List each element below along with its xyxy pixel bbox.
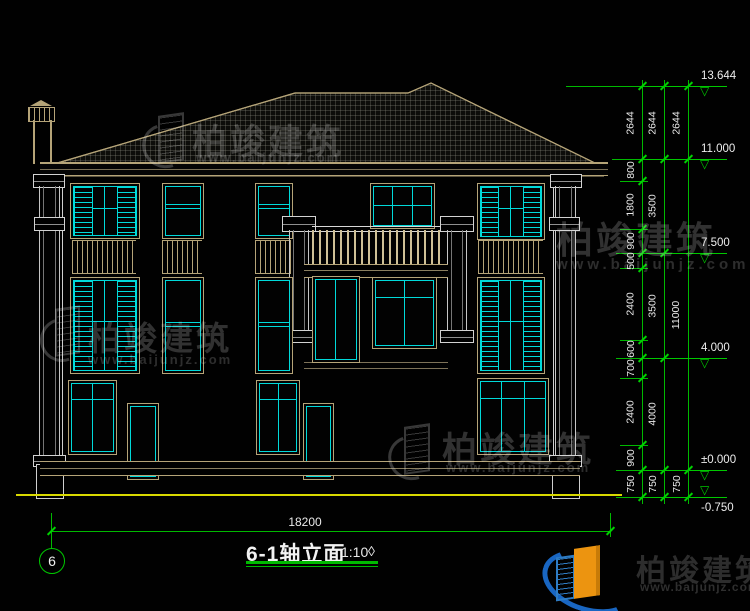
dim-segment-label-box: 2644 xyxy=(643,86,662,159)
brand-logo-icon xyxy=(40,302,84,360)
dim-segment-label: 2400 xyxy=(625,292,637,315)
watermark-url: www.baijunjz.com xyxy=(196,150,340,165)
logo-tower-icon xyxy=(574,545,600,599)
dim-segment-label: 750 xyxy=(625,475,637,493)
level-marker-label: ±0.000 xyxy=(701,454,736,466)
dim-segment-label: 800 xyxy=(625,161,637,179)
dim-segment-label-box: 2400 xyxy=(621,268,640,340)
dim-chain-line xyxy=(664,80,665,504)
logo-tower-small-icon xyxy=(556,555,575,602)
level-marker-triangle-icon: ▽ xyxy=(700,484,709,496)
dim-segment-label-box: 750 xyxy=(643,470,662,497)
level-marker-line xyxy=(646,497,727,498)
level-marker-label: -0.750 xyxy=(701,502,734,514)
watermark-url: www.baijunjz.com xyxy=(446,460,590,475)
level-marker-line xyxy=(646,86,727,87)
dim-segment-label-box: 700 xyxy=(621,358,640,378)
level-marker-line xyxy=(646,159,727,160)
dim-segment-label-box: 2644 xyxy=(667,86,686,159)
title-underline-thin xyxy=(246,566,378,567)
dim-segment-label: 750 xyxy=(647,475,659,493)
dim-segment-label-box: 2644 xyxy=(621,86,640,159)
level-marker-triangle-icon: ▽ xyxy=(700,469,709,481)
watermark-url: www.baijunjz.com xyxy=(88,352,232,367)
bottom-dimension-label: 18200 xyxy=(265,515,345,529)
dim-segment-label: 3500 xyxy=(647,294,659,317)
dim-segment-label-box: 750 xyxy=(667,470,686,497)
axis-bubble-label: 6 xyxy=(48,553,56,569)
watermark-url: www.baijunjz.com xyxy=(556,256,749,273)
dim-segment-label: 4000 xyxy=(647,402,659,425)
elevation-drawing-canvas: 2644800180090050024006007002400900750264… xyxy=(0,0,750,611)
level-marker-line xyxy=(646,470,727,471)
dim-segment-label-box: 2400 xyxy=(621,378,640,445)
dim-segment-label-box: 11000 xyxy=(667,159,686,470)
dim-segment-label: 11000 xyxy=(671,300,683,328)
dim-segment-label: 750 xyxy=(671,475,683,493)
dim-segment-label-box: 4000 xyxy=(643,358,662,470)
level-marker-triangle-icon: ▽ xyxy=(700,357,709,369)
dim-segment-label: 2644 xyxy=(671,111,683,134)
dimension-layer: 2644800180090050024006007002400900750264… xyxy=(0,0,750,611)
brand-url: www.baijunjz.com xyxy=(640,580,750,594)
brand-logo-icon xyxy=(388,420,434,478)
drawing-scale: 1:10 xyxy=(341,544,368,560)
level-marker-line xyxy=(646,358,727,359)
dim-segment-label: 900 xyxy=(625,449,637,467)
dim-segment-label: 2644 xyxy=(625,111,637,134)
dim-segment-label: 2400 xyxy=(625,400,637,423)
dim-segment-label-box: 750 xyxy=(621,470,640,497)
axis-bubble: 6 xyxy=(39,548,65,574)
dim-chain-line xyxy=(688,80,689,504)
dim-segment-label-box: 800 xyxy=(621,159,640,181)
level-marker-label: 13.644 xyxy=(701,70,736,82)
level-marker-triangle-icon: ▽ xyxy=(700,85,709,97)
brand-logo-icon xyxy=(142,110,188,166)
title-underline-thick xyxy=(246,561,378,564)
level-marker-label: 4.000 xyxy=(701,342,730,354)
level-marker-triangle-icon: ▽ xyxy=(700,158,709,170)
dim-segment-label: 700 xyxy=(625,359,637,377)
level-marker-label: 11.000 xyxy=(701,143,735,155)
dim-segment-label: 2644 xyxy=(647,111,659,134)
dim-segment-label-box: 600 xyxy=(621,340,640,358)
diamond-icon: ◊ xyxy=(368,543,375,559)
dim-segment-label-box: 900 xyxy=(621,445,640,470)
dim-segment-label: 600 xyxy=(625,340,637,358)
